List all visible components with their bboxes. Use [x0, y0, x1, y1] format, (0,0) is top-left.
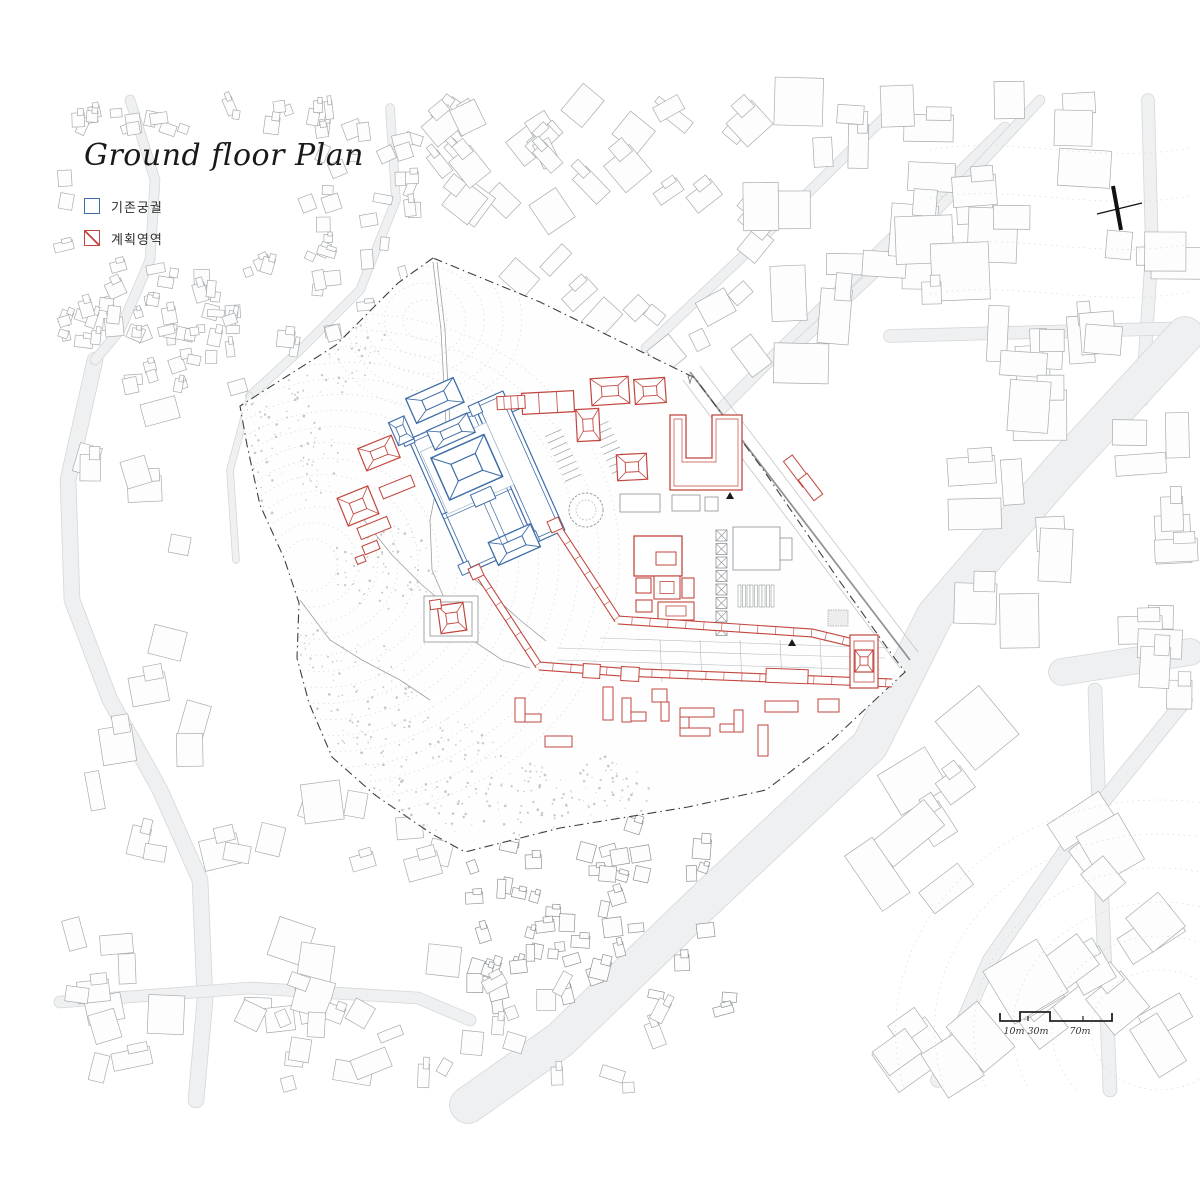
tree-dot — [398, 709, 400, 711]
gray-structure — [620, 494, 660, 512]
tree-dot — [390, 666, 392, 668]
tree-dot — [265, 461, 268, 464]
context-building — [207, 309, 224, 317]
context-building — [1145, 232, 1186, 271]
tree-dot — [357, 720, 359, 722]
tree-dot — [394, 526, 395, 527]
tree-dot — [241, 307, 243, 309]
tree-dot — [209, 443, 210, 444]
tree-dot — [324, 453, 325, 454]
context-building — [598, 900, 610, 917]
tree-dot — [252, 376, 255, 379]
tree-dot — [279, 287, 281, 289]
tree-dot — [296, 296, 297, 297]
tree-dot — [506, 757, 507, 758]
context-building — [565, 159, 610, 205]
tree-dot — [257, 337, 259, 339]
tree-dot — [266, 740, 268, 742]
tree-dot — [327, 347, 329, 349]
context-building — [226, 325, 239, 333]
planned-building — [521, 391, 574, 415]
tree-dot — [383, 334, 385, 336]
tree-dot — [253, 723, 254, 724]
scale-label-70m: 70m — [1069, 1026, 1090, 1037]
tree-dot — [247, 409, 248, 410]
context-building — [919, 863, 974, 914]
tree-dot — [627, 786, 629, 788]
tree-dot — [294, 398, 297, 401]
context-building — [72, 109, 85, 128]
tree-dot — [258, 733, 259, 734]
planned-building — [636, 600, 652, 612]
context-building — [994, 81, 1025, 119]
tree-dot — [599, 758, 601, 760]
tree-dot — [530, 790, 532, 792]
tree-dot — [429, 743, 432, 746]
context-building — [1160, 486, 1183, 531]
tree-dot — [275, 698, 277, 700]
tree-dot — [486, 800, 488, 802]
context-building — [187, 354, 201, 366]
tree-dot — [313, 446, 315, 448]
tree-dot — [438, 812, 440, 814]
tree-dot — [460, 740, 462, 742]
tree-dot — [260, 290, 262, 292]
context-building — [360, 249, 373, 269]
tree-dot — [281, 706, 283, 708]
tree-dot — [268, 416, 271, 419]
context-building — [720, 93, 773, 147]
context-building — [461, 1030, 484, 1055]
tree-dot — [364, 347, 366, 349]
tree-dot — [316, 629, 319, 632]
tree-dot — [224, 465, 226, 467]
tree-dot — [538, 786, 540, 788]
tree-dot — [258, 326, 260, 328]
tree-dot — [306, 299, 309, 302]
tree-dot — [457, 802, 460, 805]
tree-dot — [358, 602, 360, 604]
tree-dot — [309, 478, 310, 479]
tree-dot — [561, 815, 563, 817]
tree-dot — [292, 640, 294, 642]
context-building — [466, 859, 479, 874]
tree-dot — [517, 790, 519, 792]
tree-dot — [257, 278, 259, 280]
tree-dot — [329, 357, 330, 358]
tree-dot — [367, 742, 369, 744]
tree-dot — [488, 788, 490, 790]
context-building — [1167, 672, 1193, 710]
tree-dot — [353, 686, 355, 688]
hatch-bar — [771, 585, 774, 607]
tree-dot — [402, 595, 404, 597]
tree-dot — [541, 812, 543, 814]
tree-dot — [395, 589, 397, 591]
tree-dot — [476, 792, 477, 793]
tree-dot — [328, 693, 331, 696]
legend-item-existing-palace: 기존궁궐 — [84, 197, 163, 215]
context-building — [300, 780, 344, 824]
tree-dot — [379, 600, 381, 602]
planned-building — [603, 687, 613, 720]
context-building — [773, 343, 828, 384]
tree-dot — [368, 579, 371, 582]
tree-dot — [520, 805, 522, 807]
context-building — [712, 1000, 734, 1017]
tree-dot — [611, 821, 613, 823]
tree-dot — [295, 286, 296, 287]
tree-dot — [357, 743, 359, 745]
tree-dot — [382, 764, 384, 766]
tree-dot — [387, 608, 389, 610]
tree-dot — [337, 349, 339, 351]
context-building — [157, 276, 174, 289]
tree-dot — [386, 586, 388, 588]
tree-dot — [381, 592, 383, 594]
context-building — [610, 848, 630, 866]
tree-dot — [374, 689, 375, 690]
tree-dot — [305, 499, 307, 501]
tree-dot — [439, 727, 441, 729]
tree-dot — [404, 687, 407, 690]
tree-dot — [264, 358, 267, 361]
tree-dot — [337, 452, 339, 454]
tree-dot — [282, 259, 283, 260]
tree-dot — [410, 721, 412, 723]
tree-dot — [432, 573, 434, 575]
tree-dot — [410, 556, 411, 557]
context-building — [304, 251, 316, 262]
tree-dot — [545, 779, 547, 781]
tree-dot — [252, 706, 253, 707]
tree-dot — [539, 835, 541, 837]
tree-dot — [374, 767, 375, 768]
planned-building — [734, 710, 743, 732]
tree-dot — [510, 785, 512, 787]
context-building — [436, 1058, 453, 1077]
tree-dot — [590, 814, 591, 815]
tree-dot — [450, 760, 452, 762]
tree-dot — [206, 452, 208, 454]
context-building — [696, 922, 715, 938]
tree-dot — [343, 741, 345, 743]
tree-dot — [405, 759, 407, 761]
context-building — [743, 182, 779, 231]
tree-dot — [466, 727, 467, 728]
tree-dot — [268, 326, 269, 327]
tree-dot — [312, 737, 314, 739]
tree-dot — [240, 412, 242, 414]
tree-dot — [425, 783, 428, 786]
context-building — [558, 273, 598, 312]
tree-dot — [318, 734, 320, 736]
tree-dot — [415, 791, 417, 793]
tree-dot — [600, 779, 602, 781]
tree-dot — [582, 769, 584, 771]
tree-dot — [251, 403, 253, 405]
tree-dot — [386, 693, 387, 694]
hatch-bar — [750, 585, 753, 607]
tree-dot — [562, 793, 564, 795]
tree-dot — [215, 482, 218, 485]
context-building — [403, 194, 416, 217]
tree-dot — [301, 356, 302, 357]
tree-dot — [485, 792, 487, 794]
tree-dot — [423, 721, 424, 722]
tree-dot — [598, 787, 601, 790]
tree-dot — [381, 553, 383, 555]
tree-dot — [333, 472, 336, 475]
context-building — [53, 237, 75, 253]
tree-dot — [451, 823, 453, 825]
tree-dot — [316, 708, 318, 710]
tree-dot — [290, 302, 292, 304]
context-building — [993, 205, 1030, 229]
tree-dot — [380, 533, 382, 535]
tree-dot — [364, 593, 366, 595]
tree-dot — [355, 691, 357, 693]
tree-dot — [518, 834, 520, 836]
planned-pavilion — [590, 376, 630, 406]
tree-dot — [368, 723, 371, 726]
tree-dot — [269, 475, 270, 476]
hatch-bar — [747, 585, 750, 607]
tree-dot — [498, 809, 499, 810]
tree-dot — [504, 805, 507, 808]
tree-dot — [503, 823, 506, 826]
tree-dot — [436, 802, 437, 803]
large-tree — [569, 493, 603, 527]
tree-dot — [246, 496, 248, 498]
tree-dot — [371, 696, 373, 698]
tree-dot — [275, 291, 276, 292]
tree-dot — [344, 572, 346, 574]
tree-dot — [435, 830, 436, 831]
context-building — [935, 686, 1019, 771]
tree-dot — [405, 727, 406, 728]
context-building — [149, 112, 168, 125]
tree-dot — [425, 591, 427, 593]
context-building — [205, 350, 217, 363]
tree-dot — [277, 684, 279, 686]
context-building — [598, 866, 616, 883]
tree-dot — [619, 800, 621, 802]
tree-dot — [442, 748, 444, 750]
tree-dot — [224, 351, 226, 353]
tree-dot — [233, 334, 235, 336]
tree-dot — [274, 434, 275, 435]
tree-dot — [386, 649, 387, 650]
tree-dot — [275, 293, 278, 296]
context-building — [140, 396, 180, 427]
tree-dot — [338, 376, 341, 379]
tree-dot — [219, 450, 221, 452]
context-building — [526, 945, 534, 962]
tree-dot — [529, 770, 531, 772]
tree-dot — [264, 659, 265, 660]
tree-dot — [398, 744, 400, 746]
tree-dot — [328, 287, 330, 289]
tree-dot — [355, 336, 356, 337]
tree-dot — [381, 339, 383, 341]
tree-dot — [296, 272, 299, 275]
tree-dot — [208, 440, 210, 442]
tree-dot — [471, 730, 473, 732]
context-building — [395, 172, 406, 186]
tree-dot — [320, 492, 322, 494]
page-title: Ground floor Plan — [84, 138, 364, 173]
tree-dot — [222, 463, 224, 465]
tree-dot — [311, 464, 313, 466]
tree-dot — [457, 722, 458, 723]
context-building — [633, 866, 651, 883]
tree-dot — [395, 811, 397, 813]
tree-dot — [341, 695, 343, 697]
tree-dot — [482, 742, 484, 744]
tree-dot — [358, 589, 360, 591]
tree-dot — [243, 455, 245, 457]
tree-dot — [611, 777, 613, 779]
gray-structure — [705, 497, 718, 511]
planned-building — [636, 578, 651, 593]
tree-dot — [383, 571, 384, 572]
tree-dot — [537, 809, 538, 810]
context-building — [190, 327, 199, 336]
tree-dot — [249, 383, 251, 385]
context-building — [559, 914, 575, 932]
tree-dot — [345, 380, 347, 382]
planned-building — [545, 736, 572, 747]
tree-dot — [553, 798, 556, 801]
tree-dot — [607, 765, 610, 768]
tree-dot — [520, 821, 522, 823]
tree-dot — [616, 775, 618, 777]
tree-dot — [398, 784, 400, 786]
tree-dot — [306, 281, 307, 282]
tree-dot — [370, 739, 371, 740]
planned-building — [766, 668, 808, 683]
tree-dot — [349, 719, 351, 721]
tree-dot — [630, 793, 633, 796]
tree-dot — [378, 666, 379, 667]
tree-dot — [478, 750, 480, 752]
tree-dot — [389, 780, 390, 781]
context-building — [324, 232, 333, 243]
tree-dot — [604, 755, 607, 758]
tree-dot — [625, 808, 626, 809]
tree-dot — [302, 483, 304, 485]
context-building — [169, 268, 178, 278]
tree-dot — [282, 354, 284, 356]
tree-dot — [313, 715, 315, 717]
planned-building — [622, 698, 631, 722]
tree-dot — [391, 722, 393, 724]
tree-dot — [298, 326, 300, 328]
planned-building — [621, 667, 640, 682]
tree-dot — [333, 680, 334, 681]
tree-dot — [466, 786, 467, 787]
tree-dot — [250, 298, 252, 300]
context-building — [623, 294, 650, 321]
context-building — [146, 369, 159, 383]
tree-dot — [337, 743, 339, 745]
tree-dot — [281, 473, 282, 474]
tree-dot — [560, 779, 561, 780]
context-building — [628, 923, 644, 933]
tree-dot — [337, 382, 339, 384]
tree-dot — [283, 691, 284, 692]
planned-building — [658, 602, 694, 620]
context-building — [689, 328, 711, 351]
tree-dot — [306, 742, 307, 743]
tree-dot — [300, 635, 301, 636]
tree-dot — [239, 361, 241, 363]
tree-dot — [319, 266, 321, 268]
context-building — [511, 885, 527, 900]
tree-dot — [408, 696, 409, 697]
tree-dot — [288, 446, 289, 447]
tree-dot — [468, 796, 470, 798]
planned-building — [720, 724, 734, 732]
tree-dot — [434, 789, 435, 790]
tree-dot — [356, 278, 357, 279]
tree-dot — [370, 775, 371, 776]
tree-dot — [447, 739, 449, 741]
tree-dot — [403, 727, 405, 729]
tree-dot — [425, 720, 427, 722]
tree-dot — [260, 727, 262, 729]
tree-dot — [249, 316, 250, 317]
tree-dot — [383, 756, 384, 757]
tree-dot — [296, 397, 299, 400]
tree-dot — [377, 556, 379, 558]
planned-building — [818, 699, 839, 712]
tree-dot — [388, 573, 390, 575]
tree-dot — [298, 477, 299, 478]
hatch-bar — [767, 585, 770, 607]
tree-dot — [306, 442, 309, 445]
tree-dot — [248, 313, 249, 314]
planned-area-swatch — [84, 230, 100, 246]
tree-dot — [366, 556, 368, 558]
tree-dot — [495, 756, 497, 758]
tree-dot — [255, 496, 257, 498]
context-building — [102, 274, 127, 300]
context-building — [316, 217, 330, 232]
tree-dot — [289, 427, 290, 428]
tree-dot — [288, 388, 290, 390]
tree-dot — [366, 336, 369, 339]
tree-dot — [383, 645, 385, 647]
tree-dot — [312, 666, 314, 668]
tree-dot — [301, 291, 303, 293]
tree-dot — [524, 780, 525, 781]
context-building — [168, 534, 191, 556]
tree-dot — [250, 698, 252, 700]
tree-dot — [571, 792, 572, 793]
tree-dot — [258, 427, 260, 429]
tree-dot — [444, 790, 447, 793]
tree-dot — [231, 429, 232, 430]
tree-dot — [331, 762, 333, 764]
context-building — [1007, 379, 1051, 433]
tree-dot — [394, 791, 395, 792]
tree-dot — [294, 394, 296, 396]
tree-dot — [419, 589, 421, 591]
existing-palace-swatch — [84, 198, 100, 214]
tree-dot — [411, 691, 413, 693]
